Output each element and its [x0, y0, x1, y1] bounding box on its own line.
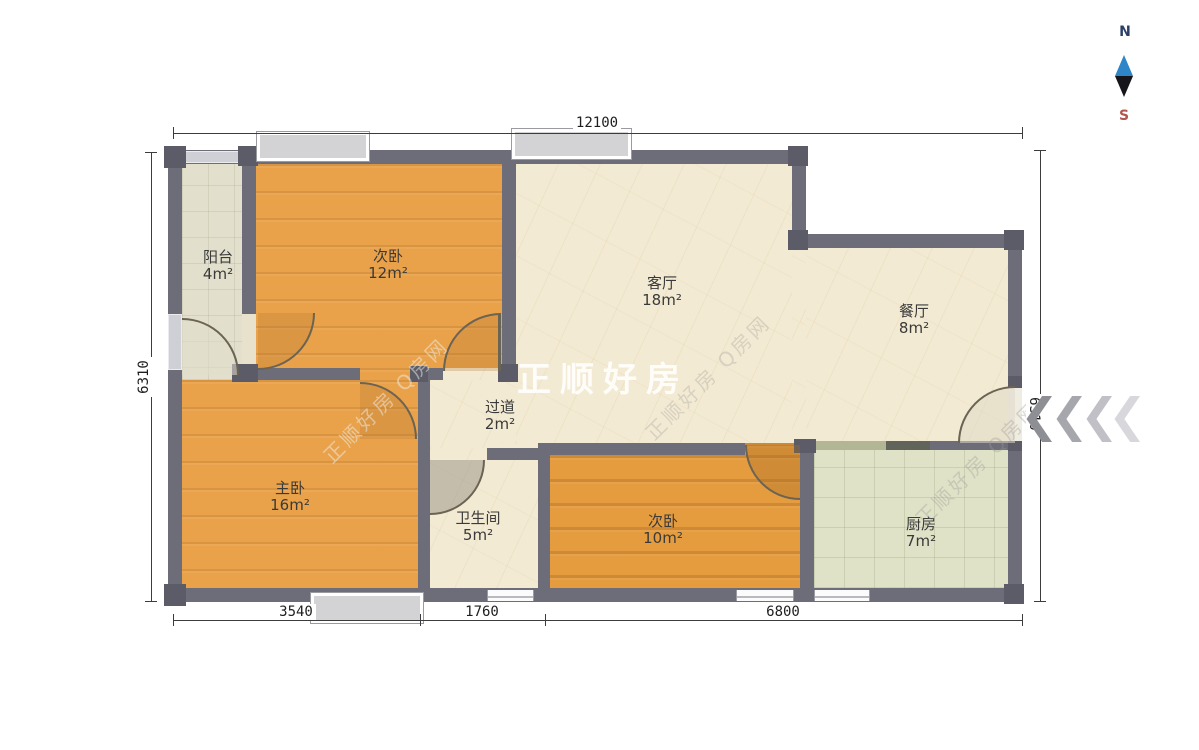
threshold [242, 314, 256, 368]
wall-bathroom-north [487, 448, 538, 460]
wall-corner [1004, 584, 1024, 604]
compass-needle-south-icon [1115, 76, 1133, 97]
kitchen-lintel [886, 441, 930, 450]
room-label-balcony: 阳台4m² [203, 249, 233, 283]
dimension-tick [173, 127, 174, 139]
dimension-tick [1034, 150, 1046, 151]
dimension-tick [173, 614, 174, 626]
room-label-living: 客厅18m² [642, 275, 682, 309]
dimension-label-left: 6310 [136, 337, 152, 417]
window [256, 131, 370, 162]
compass-needle-north-icon [1115, 55, 1133, 76]
dimension-tick [545, 614, 546, 626]
wall-master-east [418, 380, 430, 588]
entrance-arrow-icon [1086, 396, 1112, 442]
wall-corner [788, 146, 808, 166]
window [736, 590, 794, 601]
kitchen-sliding-door [814, 441, 886, 450]
wall-corner [498, 364, 518, 382]
dimension-line-top [173, 133, 1022, 134]
wall-bottom [168, 588, 1022, 602]
entrance-arrow-icon [1056, 396, 1082, 442]
wall-corner [1004, 230, 1024, 250]
dimension-tick [1022, 614, 1023, 626]
floor-plan-canvas: 阳台4m² 次卧12m² 客厅18m² 餐厅8m² 过道2m² 主卧16m² 卫… [0, 0, 1199, 750]
room-label-bathroom: 卫生间5m² [455, 510, 500, 544]
dimension-line-bottom [173, 620, 1022, 621]
dimension-label-bottom-1: 3540 [256, 604, 336, 620]
dimension-label-top: 12100 [552, 115, 642, 131]
door-leaf [498, 315, 501, 371]
watermark-center: 正顺好房 [517, 352, 689, 401]
dimension-tick [420, 614, 421, 626]
wall-left [168, 164, 182, 588]
compass-south-label: S [1113, 108, 1135, 124]
wall-corner [238, 146, 258, 166]
wall-right-lower [1008, 443, 1022, 602]
dimension-tick [1034, 601, 1046, 602]
room-label-bedroom-a: 次卧12m² [368, 248, 408, 282]
dimension-tick [145, 601, 157, 602]
wall-right-upper [1008, 248, 1022, 386]
window [814, 590, 870, 601]
wall-corner [788, 230, 808, 250]
threshold [430, 448, 487, 460]
dimension-label-bottom-3: 6800 [743, 604, 823, 620]
balcony-side-window [168, 314, 182, 370]
wall-corner [164, 146, 186, 168]
wall-bathroom-east [538, 448, 550, 588]
room-living-floor-gap [792, 248, 806, 443]
dimension-tick [1022, 127, 1023, 139]
wall-bedroom-living [502, 164, 516, 380]
wall-corner [164, 584, 186, 606]
wall-kitchen-west [800, 443, 814, 588]
room-label-hallway: 过道2m² [485, 399, 515, 433]
room-label-bedroom-b: 次卧10m² [643, 513, 683, 547]
dimension-label-bottom-2: 1760 [442, 604, 522, 620]
entrance-arrow-icon [1114, 396, 1140, 442]
wall-step-horizontal [792, 234, 1022, 248]
window [487, 590, 534, 601]
balcony-top-window [181, 151, 243, 163]
dimension-tick [145, 152, 157, 153]
wall-balcony-divider [242, 164, 256, 314]
room-label-dining: 餐厅8m² [899, 303, 929, 337]
compass-north-label: N [1114, 24, 1136, 40]
room-label-master: 主卧16m² [270, 480, 310, 514]
